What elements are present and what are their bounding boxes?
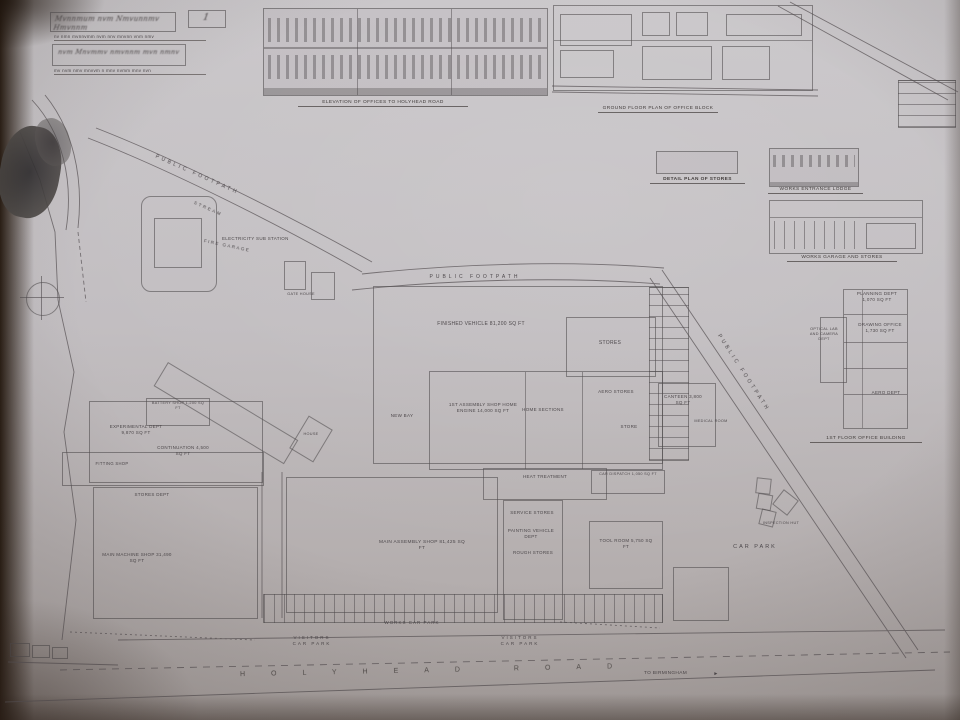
lodge-caption: WORKS ENTRANCE LODGE — [768, 187, 863, 194]
bay-divider — [451, 9, 452, 95]
stores-building — [566, 317, 656, 377]
title-block-note: nv nmn mvnnvmm nvm nnv mnvnn vnm nmv — [54, 34, 206, 41]
sub-station-label: ELECTRICITY SUB STATION — [222, 236, 292, 242]
plan-room — [560, 14, 632, 46]
visitors-car-park-label: VISITORS CAR PARK — [494, 635, 546, 647]
fitting-shop-building — [62, 452, 264, 486]
plan-room — [642, 46, 712, 80]
handwritten-title: Mvnnmum nvm Nmvunnmv Hmvnnm — [52, 15, 173, 34]
canteen-building — [658, 383, 716, 447]
heat-treatment-building — [483, 468, 607, 500]
pencil-drawing-layer: Mvnnmum nvm Nmvunnmv Hmvnnm 1 nv nmn mvn… — [0, 0, 960, 720]
south-east-building — [673, 567, 729, 621]
stores-label: STORES — [588, 340, 632, 347]
aero-dept-label: AERO DEPT — [866, 390, 906, 396]
north-point-symbol — [26, 282, 60, 316]
machine-shop-label: MAIN MACHINE SHOP 31,490 SQ FT — [100, 552, 174, 564]
lay-by-building — [10, 643, 30, 657]
arrow-right-icon: ► — [710, 671, 722, 678]
painting-vehicle-label: PAINTING VEHICLE DEPT — [504, 528, 558, 540]
inspection-hut-label: INSPECTION HUT — [755, 521, 807, 526]
corridor-line — [554, 40, 812, 41]
tool-room-building — [589, 521, 663, 589]
first-floor-plan-drawing — [843, 289, 908, 429]
window-row — [268, 55, 543, 79]
plan-room — [722, 46, 770, 80]
canteen-label: CANTEEN 3,800 SQ FT — [660, 394, 706, 406]
handwritten-note: nvm Mnvmmv nmvnnm mvn nmnv — [57, 48, 181, 57]
stores-shed-drawing — [656, 151, 738, 174]
rough-stores-label: ROUGH STORES — [508, 550, 558, 556]
window-row — [268, 18, 543, 42]
medical-room-label: MEDICAL ROOM — [690, 419, 732, 424]
tool-room-label: TOOL ROOM 5,750 SQ FT — [598, 538, 654, 550]
plan-room — [642, 12, 670, 36]
title-block-note: mv nvm nmv mnvvm n mnv nvmm mnv nvn — [54, 68, 206, 75]
fitting-shop-label: FITTING SHOP — [82, 461, 142, 467]
plan-room — [676, 12, 708, 36]
store-label: STORE — [612, 424, 646, 430]
north-point-needle — [41, 276, 42, 320]
aero-stores-label: AERO STORES — [596, 389, 636, 395]
battery-shop-label: BATTERY SHOP 1,200 SQ FT — [150, 401, 206, 411]
north-point-crossbar — [20, 297, 64, 298]
sub-station-building — [154, 218, 202, 268]
corridor-line — [770, 217, 922, 218]
gate-house-label: GATE HOUSE — [280, 292, 322, 297]
lodge-drawing — [769, 148, 859, 187]
partition-wall — [582, 372, 583, 469]
plinth-band — [770, 182, 858, 186]
house-label: HOUSE — [296, 432, 326, 437]
photographed-site-plan: Mvnnmum nvm Nmvunnmv Hmvnnm 1 nv nmn mvn… — [0, 0, 960, 720]
room-divider — [844, 314, 907, 315]
service-stores-label: SERVICE STORES — [506, 510, 558, 516]
floor-band — [264, 47, 547, 49]
stores-shed-caption: DETAIL PLAN OF STORES — [650, 177, 745, 184]
elevation-caption: ELEVATION OF OFFICES TO HOLYHEAD ROAD — [298, 100, 468, 107]
heat-treatment-label: HEAT TREATMENT — [500, 474, 590, 480]
ground-plan-caption: GROUND FLOOR PLAN OF OFFICE BLOCK — [598, 106, 718, 113]
gate-house-building — [284, 261, 306, 290]
new-bay-label: NEW BAY — [384, 413, 420, 419]
plan-room — [866, 223, 916, 249]
sheet-number: 1 — [187, 12, 225, 24]
plinth-band — [264, 88, 547, 95]
works-car-park-label: WORKS CAR PARK — [372, 620, 452, 626]
optical-lab-label: OPTICAL LAB AND CAMERA DEPT — [806, 327, 842, 342]
bay-divider — [357, 9, 358, 95]
plan-partitions — [774, 221, 862, 249]
south-range-building — [263, 594, 663, 623]
room-divider — [844, 342, 907, 343]
garage-plan-drawing — [769, 200, 923, 254]
home-sections-label: HOME SECTIONS — [522, 407, 564, 413]
public-footpath-label: PUBLIC FOOTPATH — [400, 274, 550, 281]
finished-vehicle-label: FINISHED VEHICLE 81,200 SQ FT — [426, 321, 536, 328]
drawing-office-label: DRAWING OFFICE 1,730 SQ FT — [856, 322, 904, 334]
room-divider — [844, 368, 907, 369]
window-row — [773, 155, 855, 167]
plan-room — [560, 50, 614, 78]
car-park-label: CAR PARK — [730, 544, 780, 551]
assembly-shop-label: 1ST ASSEMBLY SHOP HOME ENGINE 14,000 SQ … — [448, 402, 518, 414]
corner-plan-drawing — [898, 80, 956, 128]
main-assembly-label: MAIN ASSEMBLY SHOP 81,425 SQ FT — [378, 540, 466, 553]
first-floor-caption: 1ST FLOOR OFFICE BUILDING — [810, 436, 922, 443]
experimental-label: EXPERIMENTAL DEPT 9,870 SQ FT — [106, 424, 166, 436]
corridor-line — [862, 290, 863, 428]
lay-by-building — [52, 647, 68, 659]
to-birmingham-label: TO BIRMINGHAM — [644, 671, 706, 677]
partition-wall — [525, 372, 526, 469]
garage-caption: WORKS GARAGE AND STORES — [787, 255, 897, 262]
car-dispatch-label: CAR DISPATCH 1,050 SQ FT — [596, 472, 660, 477]
planning-dept-label: PLANNING DEPT 1,070 SQ FT — [852, 291, 902, 303]
assembly-shop-building — [429, 371, 663, 470]
plan-room — [726, 14, 802, 36]
visitors-car-park-label: VISITORS CAR PARK — [286, 635, 338, 647]
lay-by-building — [32, 645, 50, 658]
ground-plan-drawing — [553, 5, 813, 91]
office-elevation-drawing — [263, 8, 548, 96]
